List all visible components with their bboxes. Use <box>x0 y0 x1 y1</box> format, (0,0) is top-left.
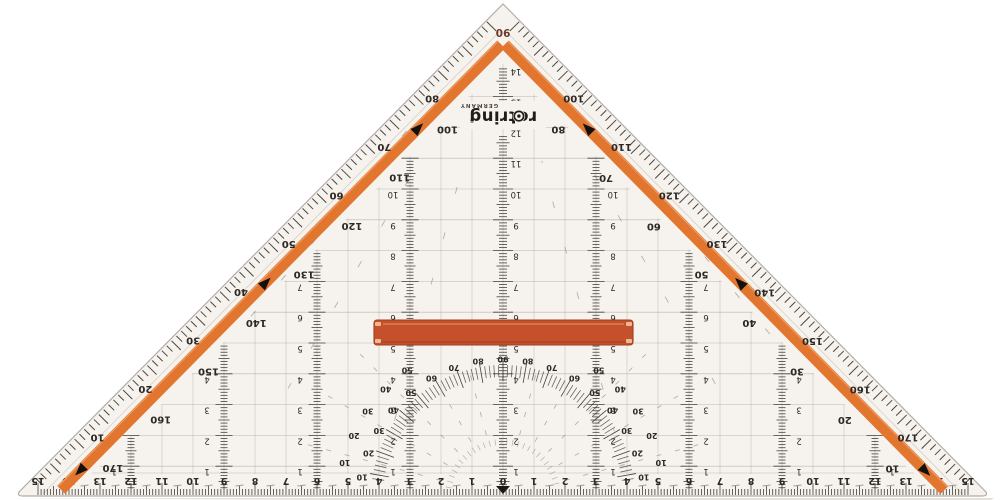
svg-text:60: 60 <box>647 220 661 231</box>
svg-text:30: 30 <box>632 406 644 415</box>
svg-text:70: 70 <box>377 141 391 152</box>
svg-text:1: 1 <box>610 466 615 476</box>
svg-text:170: 170 <box>897 432 918 443</box>
svg-text:40: 40 <box>387 406 399 415</box>
svg-text:90: 90 <box>496 26 511 38</box>
svg-text:20: 20 <box>646 431 658 440</box>
svg-text:GERMANY: GERMANY <box>460 102 499 108</box>
svg-text:50: 50 <box>401 366 413 375</box>
apex-90-label: 90 <box>496 26 511 38</box>
svg-text:10: 10 <box>388 189 399 199</box>
set-square-product-photo: 1234567891011121314123456789101234567891… <box>0 0 1000 500</box>
svg-text:30: 30 <box>362 406 374 415</box>
svg-text:150: 150 <box>198 365 219 376</box>
svg-text:8: 8 <box>610 251 615 261</box>
svg-text:60: 60 <box>426 374 438 383</box>
svg-text:3: 3 <box>513 405 518 415</box>
svg-text:3: 3 <box>204 405 209 415</box>
svg-text:10: 10 <box>806 475 820 486</box>
svg-text:3: 3 <box>297 405 302 415</box>
svg-text:4: 4 <box>390 374 395 384</box>
svg-text:4: 4 <box>375 475 382 486</box>
svg-text:40: 40 <box>234 286 248 297</box>
svg-text:70: 70 <box>448 363 460 372</box>
svg-text:10: 10 <box>339 458 351 467</box>
svg-text:40: 40 <box>380 384 392 393</box>
svg-text:50: 50 <box>282 238 296 249</box>
svg-text:12: 12 <box>124 475 137 486</box>
svg-text:80: 80 <box>522 357 534 366</box>
svg-text:160: 160 <box>150 414 171 425</box>
svg-text:6: 6 <box>313 475 320 486</box>
svg-text:6: 6 <box>297 312 302 322</box>
svg-text:50: 50 <box>593 366 605 375</box>
svg-text:4: 4 <box>297 374 302 384</box>
svg-text:8: 8 <box>251 475 258 486</box>
svg-text:170: 170 <box>102 462 123 473</box>
svg-text:20: 20 <box>631 449 643 458</box>
svg-text:4: 4 <box>703 374 708 384</box>
svg-text:130: 130 <box>707 238 728 249</box>
svg-text:9: 9 <box>221 475 228 486</box>
handle-bar <box>374 320 633 345</box>
svg-text:3: 3 <box>796 405 801 415</box>
handle-cap <box>626 339 632 343</box>
svg-text:5: 5 <box>655 475 662 486</box>
set-square-drawing: 1234567891011121314123456789101234567891… <box>0 0 1000 500</box>
svg-text:9: 9 <box>513 220 518 230</box>
svg-text:90: 90 <box>497 355 509 364</box>
svg-text:6: 6 <box>703 312 708 322</box>
svg-text:9: 9 <box>779 475 786 486</box>
svg-text:70: 70 <box>546 363 558 372</box>
svg-text:10: 10 <box>886 462 900 473</box>
svg-text:10: 10 <box>638 473 650 482</box>
svg-text:1: 1 <box>469 475 476 486</box>
svg-text:8: 8 <box>390 251 395 261</box>
svg-text:7: 7 <box>717 475 724 486</box>
svg-text:7: 7 <box>610 281 615 291</box>
svg-text:7: 7 <box>283 475 290 486</box>
svg-text:11: 11 <box>837 475 850 486</box>
svg-text:120: 120 <box>341 220 362 231</box>
svg-text:13: 13 <box>899 475 912 486</box>
svg-text:2: 2 <box>297 435 302 445</box>
svg-text:50: 50 <box>405 388 417 397</box>
svg-text:1: 1 <box>204 466 209 476</box>
svg-text:10: 10 <box>655 458 667 467</box>
svg-text:10: 10 <box>186 475 200 486</box>
svg-text:100: 100 <box>437 123 458 134</box>
svg-text:2: 2 <box>796 435 801 445</box>
svg-text:40: 40 <box>614 384 626 393</box>
handle-cap <box>626 322 632 326</box>
svg-text:150: 150 <box>802 335 823 346</box>
svg-text:10: 10 <box>511 189 522 199</box>
svg-text:110: 110 <box>389 172 410 183</box>
svg-text:4: 4 <box>610 374 615 384</box>
svg-text:30: 30 <box>790 366 804 377</box>
svg-text:7: 7 <box>703 281 708 291</box>
rotring-logo: rotring®GERMANY <box>460 101 546 129</box>
svg-text:5: 5 <box>703 343 708 353</box>
svg-text:20: 20 <box>348 431 360 440</box>
svg-text:5: 5 <box>297 343 302 353</box>
svg-text:11: 11 <box>155 475 168 486</box>
svg-text:13: 13 <box>93 475 106 486</box>
svg-text:8: 8 <box>513 251 518 261</box>
svg-text:80: 80 <box>551 123 565 134</box>
svg-text:1: 1 <box>703 466 708 476</box>
svg-text:110: 110 <box>611 141 632 152</box>
svg-text:7: 7 <box>513 281 518 291</box>
svg-text:3: 3 <box>407 475 414 486</box>
svg-text:10: 10 <box>608 189 619 199</box>
svg-text:120: 120 <box>659 190 680 201</box>
handle-cap <box>375 322 381 326</box>
svg-text:3: 3 <box>703 405 708 415</box>
handle-cap <box>375 339 381 343</box>
svg-text:160: 160 <box>850 383 871 394</box>
svg-text:80: 80 <box>425 93 439 104</box>
svg-text:2: 2 <box>703 435 708 445</box>
svg-text:11: 11 <box>511 158 522 168</box>
svg-text:®: ® <box>470 117 475 124</box>
svg-text:0: 0 <box>499 475 506 486</box>
svg-text:2: 2 <box>204 435 209 445</box>
svg-text:20: 20 <box>838 414 852 425</box>
svg-text:60: 60 <box>569 374 581 383</box>
svg-text:rotring: rotring <box>469 108 537 127</box>
svg-text:30: 30 <box>186 335 200 346</box>
svg-text:140: 140 <box>754 286 775 297</box>
svg-text:1: 1 <box>513 466 518 476</box>
svg-text:4: 4 <box>623 475 630 486</box>
svg-text:70: 70 <box>599 172 613 183</box>
svg-text:40: 40 <box>607 406 619 415</box>
svg-text:1: 1 <box>297 466 302 476</box>
brand-wordmark: rotring® <box>469 108 537 127</box>
svg-text:1: 1 <box>796 466 801 476</box>
svg-text:1: 1 <box>531 475 538 486</box>
svg-text:5: 5 <box>345 475 352 486</box>
svg-text:12: 12 <box>868 475 881 486</box>
svg-text:10: 10 <box>91 431 105 442</box>
svg-text:30: 30 <box>621 426 633 435</box>
svg-text:100: 100 <box>563 93 584 104</box>
svg-text:140: 140 <box>246 317 267 328</box>
svg-text:50: 50 <box>589 388 601 397</box>
svg-text:6: 6 <box>685 475 692 486</box>
svg-text:40: 40 <box>742 317 756 328</box>
svg-text:9: 9 <box>610 220 615 230</box>
svg-text:1: 1 <box>390 466 395 476</box>
svg-text:7: 7 <box>390 281 395 291</box>
svg-text:80: 80 <box>472 357 484 366</box>
svg-text:20: 20 <box>363 449 375 458</box>
svg-text:3: 3 <box>593 475 600 486</box>
svg-text:20: 20 <box>138 383 152 394</box>
svg-text:7: 7 <box>297 281 302 291</box>
svg-text:10: 10 <box>356 473 368 482</box>
svg-text:8: 8 <box>747 475 754 486</box>
svg-text:130: 130 <box>294 268 315 279</box>
svg-text:30: 30 <box>373 426 385 435</box>
svg-text:50: 50 <box>695 269 709 280</box>
svg-text:9: 9 <box>390 220 395 230</box>
svg-text:60: 60 <box>330 189 344 200</box>
